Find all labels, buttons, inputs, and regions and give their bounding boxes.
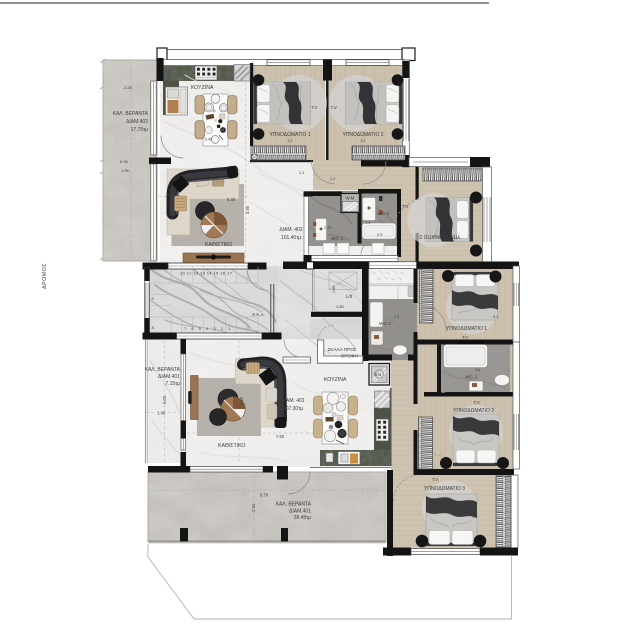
svg-text:101.40τμ: 101.40τμ [281, 235, 301, 241]
svg-text:ΥΠΝΟΔΩΜΑΤΙΟ 3: ΥΠΝΟΔΩΜΑΤΙΟ 3 [419, 233, 460, 239]
svg-text:ΔΙΑΜ.401: ΔΙΑΜ.401 [158, 374, 180, 380]
svg-text:2.3: 2.3 [394, 315, 399, 319]
svg-text:1.80: 1.80 [336, 304, 345, 309]
svg-text:7.60: 7.60 [276, 434, 285, 439]
svg-text:1.1: 1.1 [330, 177, 335, 181]
svg-text:2.6: 2.6 [475, 368, 480, 372]
svg-text:W.M: W.M [346, 196, 355, 201]
svg-text:T.V: T.V [474, 400, 480, 405]
svg-text:ΚΑΛ. ΒΕΡΑΝΤΑ: ΚΑΛ. ΒΕΡΑΝΤΑ [276, 502, 312, 508]
svg-text:T.V: T.V [331, 105, 337, 110]
svg-text:W.M: W.M [374, 373, 381, 377]
svg-text:6.20: 6.20 [239, 396, 244, 405]
svg-text:ΔΡΟΜΟΣ: ΔΡΟΜΟΣ [42, 263, 48, 289]
svg-text:ΣΚΑΛΑ ΠΡΟΣ: ΣΚΑΛΑ ΠΡΟΣ [328, 347, 357, 352]
svg-text:107.30τμ: 107.30τμ [283, 406, 303, 412]
svg-text:2.75: 2.75 [324, 226, 331, 230]
svg-text:ΥΠΝΟΔΩΜΑΤΙΟ 3: ΥΠΝΟΔΩΜΑΤΙΟ 3 [424, 486, 465, 492]
svg-text:2.94: 2.94 [251, 503, 256, 512]
svg-text:2.9: 2.9 [377, 233, 382, 237]
svg-text:3.1: 3.1 [493, 315, 498, 319]
svg-text:WC-1: WC-1 [379, 321, 392, 327]
svg-text:1.4: 1.4 [365, 221, 370, 225]
svg-text:Χ.Κ.Α.: Χ.Κ.Α. [252, 312, 265, 317]
svg-text:ΚΑΘΙΣΤΙΚΟ: ΚΑΘΙΣΤΙΚΟ [218, 443, 245, 449]
svg-text:7.15τμ: 7.15τμ [165, 381, 180, 387]
svg-text:WC-2: WC-2 [465, 375, 478, 381]
svg-text:ΔΙΑΜ.402: ΔΙΑΜ.402 [126, 119, 148, 125]
svg-text:ΔΙΑΜ. 401: ΔΙΑΜ. 401 [281, 398, 305, 404]
svg-text:WC-2: WC-2 [377, 211, 390, 217]
svg-text:ΔΙΑΜ.401: ΔΙΑΜ.401 [289, 509, 311, 515]
svg-text:T.V: T.V [462, 335, 468, 340]
svg-text:3.1: 3.1 [472, 515, 477, 519]
svg-text:ΥΠΝΟΔΩΜΑΤΙΟ 1: ΥΠΝΟΔΩΜΑΤΙΟ 1 [446, 326, 487, 332]
svg-text:3.95: 3.95 [245, 205, 250, 214]
svg-text:ΚΑΛ. ΒΕΡΑΝΤΑ: ΚΑΛ. ΒΕΡΑΝΤΑ [113, 111, 149, 117]
svg-text:6.35: 6.35 [120, 159, 129, 164]
svg-text:1.95: 1.95 [121, 168, 130, 173]
svg-text:3.4: 3.4 [448, 222, 453, 226]
svg-text:ΚΟΥΖΙΝΑ: ΚΟΥΖΙΝΑ [191, 85, 214, 91]
svg-text:9.70: 9.70 [260, 493, 269, 498]
svg-text:17.75τμ: 17.75τμ [131, 127, 148, 133]
svg-text:2.28: 2.28 [124, 85, 133, 90]
svg-text:ΥΠΝΟΔΩΜΑΤΙΟ 1: ΥΠΝΟΔΩΜΑΤΙΟ 1 [269, 132, 310, 138]
svg-text:WC-1: WC-1 [331, 236, 344, 242]
svg-text:3.1: 3.1 [287, 139, 292, 143]
svg-text:ΚΑΘΙΣΤΙΚΟ: ΚΑΘΙΣΤΙΚΟ [205, 242, 232, 248]
svg-text:ΚΟΥΖΙΝΑ: ΚΟΥΖΙΝΑ [324, 377, 347, 383]
svg-text:ΟΡΟΦΗ: ΟΡΟΦΗ [341, 353, 358, 358]
svg-text:6.30: 6.30 [227, 197, 236, 202]
svg-text:1.80: 1.80 [332, 286, 336, 293]
svg-text:ΥΠΝΟΔΩΜΑΤΙΟ 2: ΥΠΝΟΔΩΜΑΤΙΟ 2 [453, 408, 494, 414]
svg-text:3.45: 3.45 [205, 137, 214, 142]
svg-text:T.V: T.V [402, 204, 408, 209]
svg-text:10 11 12 13 14 15 16 17: 10 11 12 13 14 15 16 17 [180, 271, 233, 276]
svg-text:3.1: 3.1 [360, 139, 365, 143]
svg-text:T.V: T.V [311, 105, 317, 110]
svg-text:1.45: 1.45 [157, 411, 166, 416]
svg-text:28.45τμ: 28.45τμ [294, 515, 311, 521]
svg-text:ΚΑΛ. ΒΕΡΑΝΤΑ: ΚΑΛ. ΒΕΡΑΝΤΑ [145, 367, 181, 373]
svg-text:T.V: T.V [432, 477, 438, 482]
svg-text:7 6 5 4 3 2 1: 7 6 5 4 3 2 1 [184, 326, 232, 331]
svg-text:ΔΙΑΜ. 402: ΔΙΑΜ. 402 [279, 227, 303, 233]
svg-text:Lift: Lift [346, 294, 353, 299]
svg-text:ΥΠΝΟΔΩΜΑΤΙΟ 2: ΥΠΝΟΔΩΜΑΤΙΟ 2 [342, 132, 383, 138]
svg-text:5.00: 5.00 [162, 395, 167, 404]
svg-text:1.1: 1.1 [299, 171, 304, 175]
